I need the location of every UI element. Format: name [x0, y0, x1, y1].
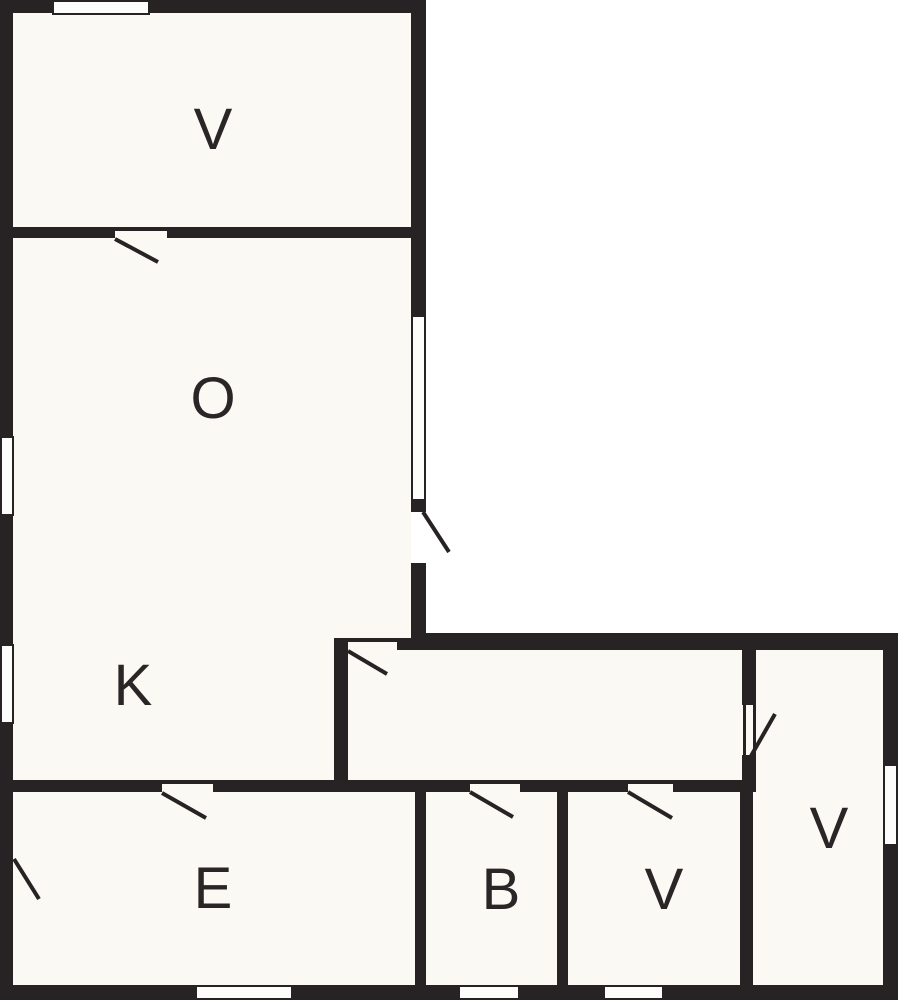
door-swing-v-top: [115, 239, 158, 262]
room-label-living-room: O: [190, 370, 235, 428]
door-swing-k-e: [162, 793, 206, 818]
floor-plan: V O K E B V V: [0, 0, 898, 1000]
room-label-bedroom-bottom: V: [645, 861, 684, 919]
door-swing-lines: [0, 0, 898, 1000]
door-swing-entrance: [14, 859, 39, 899]
room-label-bathroom: B: [482, 861, 521, 919]
door-swing-o-hall: [348, 651, 387, 674]
door-swing-b: [470, 792, 513, 817]
room-label-entrance: E: [194, 860, 233, 918]
room-label-kitchen: K: [114, 657, 153, 715]
room-label-bedroom-right: V: [810, 800, 849, 858]
door-swing-v-right: [751, 714, 775, 756]
door-swing-o-exterior: [423, 512, 449, 552]
door-swing-v-bottom: [628, 792, 672, 818]
room-label-bedroom-top: V: [194, 101, 233, 159]
